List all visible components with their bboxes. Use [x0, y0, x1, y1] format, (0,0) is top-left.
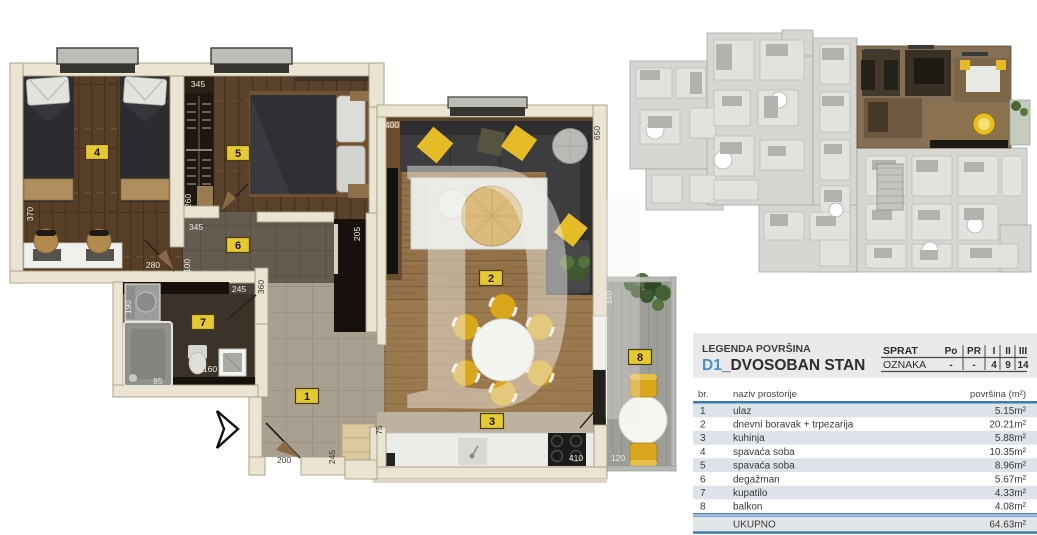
svg-text:I: I [993, 346, 996, 357]
svg-text:345: 345 [191, 79, 205, 89]
svg-text:dnevni boravak + trpezarija: dnevni boravak + trpezarija [733, 420, 854, 431]
svg-text:100: 100 [182, 259, 192, 273]
svg-text:spavaća soba: spavaća soba [733, 447, 795, 458]
svg-text:br.: br. [698, 389, 709, 400]
svg-text:-: - [949, 360, 952, 371]
svg-text:SPRAT: SPRAT [883, 345, 918, 357]
svg-text:4: 4 [700, 447, 706, 458]
svg-text:5.67m²: 5.67m² [995, 474, 1027, 485]
svg-text:6: 6 [235, 240, 241, 252]
svg-text:345: 345 [189, 222, 203, 232]
svg-text:4: 4 [94, 147, 101, 159]
svg-text:20.21m²: 20.21m² [989, 420, 1026, 431]
svg-text:LEGENDA POVRŠINA: LEGENDA POVRŠINA [702, 342, 811, 355]
svg-text:650: 650 [592, 126, 602, 140]
svg-text:kuhinja: kuhinja [733, 433, 765, 444]
svg-text:370: 370 [25, 207, 35, 221]
svg-text:površina (m²): površina (m²) [970, 389, 1026, 400]
svg-text:400: 400 [385, 120, 399, 130]
svg-text:kupatilo: kupatilo [733, 488, 768, 499]
svg-text:4: 4 [991, 360, 997, 371]
svg-text:D1_DVOSOBAN STAN: D1_DVOSOBAN STAN [702, 357, 865, 374]
svg-text:6: 6 [700, 474, 706, 485]
svg-text:-: - [972, 360, 975, 371]
svg-text:405: 405 [378, 317, 388, 331]
svg-text:Po: Po [945, 346, 958, 357]
svg-text:8: 8 [637, 352, 643, 364]
svg-text:2: 2 [700, 420, 706, 431]
svg-text:8: 8 [700, 502, 706, 513]
svg-text:360: 360 [256, 280, 266, 294]
svg-text:160: 160 [203, 364, 217, 374]
svg-text:spavaća soba: spavaća soba [733, 461, 795, 472]
svg-text:200: 200 [277, 455, 291, 465]
svg-text:4.33m²: 4.33m² [995, 488, 1027, 499]
svg-text:OZNAKA: OZNAKA [883, 359, 926, 371]
svg-text:10.35m²: 10.35m² [989, 447, 1026, 458]
svg-text:4.08m²: 4.08m² [995, 502, 1027, 513]
svg-text:5.88m²: 5.88m² [995, 433, 1027, 444]
svg-text:75: 75 [375, 425, 384, 434]
svg-text:245: 245 [327, 450, 337, 464]
svg-text:5.15m²: 5.15m² [995, 406, 1027, 417]
svg-text:205: 205 [352, 227, 362, 241]
svg-text:PR: PR [967, 346, 982, 357]
svg-text:ulaz: ulaz [733, 406, 751, 417]
svg-text:5: 5 [235, 148, 241, 160]
svg-text:9: 9 [1005, 360, 1011, 371]
svg-text:naziv prostorije: naziv prostorije [733, 389, 797, 400]
svg-text:III: III [1019, 346, 1028, 357]
svg-text:245: 245 [232, 284, 246, 294]
svg-text:260: 260 [183, 194, 193, 208]
svg-text:64.63m²: 64.63m² [989, 520, 1026, 531]
svg-text:2: 2 [488, 273, 494, 285]
svg-text:190: 190 [124, 300, 133, 314]
svg-text:340: 340 [604, 291, 614, 305]
svg-text:5: 5 [700, 461, 706, 472]
svg-text:120: 120 [611, 453, 625, 463]
svg-text:balkon: balkon [733, 502, 762, 513]
svg-text:280: 280 [146, 260, 160, 270]
svg-text:3: 3 [489, 416, 495, 428]
svg-text:7: 7 [200, 317, 206, 329]
svg-text:14: 14 [1017, 360, 1029, 371]
svg-text:3: 3 [700, 433, 706, 444]
svg-text:410: 410 [569, 453, 583, 463]
svg-text:1: 1 [304, 391, 310, 403]
svg-text:8.96m²: 8.96m² [995, 461, 1027, 472]
svg-text:1: 1 [700, 406, 706, 417]
svg-text:85: 85 [153, 376, 163, 386]
svg-text:degažman: degažman [733, 474, 780, 485]
svg-text:II: II [1005, 346, 1011, 357]
svg-text:UKUPNO: UKUPNO [733, 520, 776, 531]
svg-text:7: 7 [700, 488, 706, 499]
